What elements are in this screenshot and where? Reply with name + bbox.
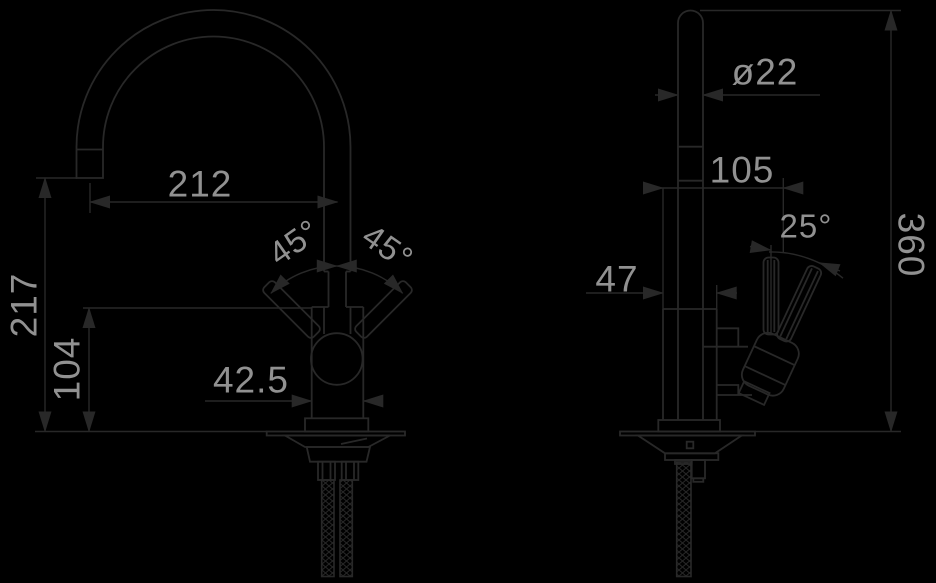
body-column <box>663 309 717 420</box>
dimension-d22: ø22 <box>655 52 820 96</box>
angle-label-right: 45° <box>356 217 421 278</box>
side-base <box>620 420 755 577</box>
dim-label-42-5: 42.5 <box>213 360 289 401</box>
hose-nut-right <box>342 462 359 480</box>
side-view: ø22 105 25° 47 360 <box>586 10 932 576</box>
dimension-42-5: 42.5 <box>205 360 383 402</box>
clamp-cone <box>285 436 390 448</box>
base-step <box>658 420 720 432</box>
ball-joint <box>311 333 363 385</box>
clamp-screw <box>341 439 367 445</box>
spout-arc <box>77 10 351 147</box>
faucet-technical-drawing: 212 217 104 42.5 45° 45° <box>0 0 936 583</box>
riser-tube-side <box>678 10 703 309</box>
lever-bracket <box>703 328 752 395</box>
front-view: 212 217 104 42.5 45° 45° <box>4 10 421 577</box>
base-step <box>305 418 368 431</box>
spout-arc-outer <box>77 10 351 147</box>
dim-label-105: 105 <box>710 150 775 191</box>
faucet-body <box>311 307 363 418</box>
spout-arc-inner <box>103 37 324 148</box>
dim-label-47: 47 <box>595 259 638 300</box>
angle-arc-25 <box>769 252 843 278</box>
angle-arrow-right <box>820 263 841 271</box>
hose-nut-left <box>318 462 335 480</box>
clamp-cone <box>638 436 742 454</box>
lever-tilted <box>775 264 822 343</box>
dim-label-212: 212 <box>168 164 233 205</box>
clamp-plate <box>307 447 370 462</box>
dimension-47: 47 <box>586 259 737 310</box>
supply-hose-right <box>340 480 352 577</box>
spout-outlet <box>77 147 104 178</box>
angle-label-left: 45° <box>262 212 327 273</box>
front-base <box>267 418 405 576</box>
tube-cap <box>678 10 703 23</box>
dimension-212: 212 <box>90 164 338 214</box>
dim-label-104: 104 <box>47 337 88 402</box>
riser-pipe <box>324 147 351 307</box>
handle-angle-right: 45° <box>337 217 420 294</box>
dim-label-d22: ø22 <box>732 52 799 93</box>
ball-housing <box>733 329 803 410</box>
angle-label-25: 25° <box>780 208 833 245</box>
drawing-canvas: 212 217 104 42.5 45° 45° <box>0 0 936 583</box>
clamp-plate <box>665 453 718 460</box>
angle-arrow-left <box>750 247 771 251</box>
dim-label-360: 360 <box>891 213 932 278</box>
hose-fitting <box>692 460 705 482</box>
clamp-notch <box>687 442 694 449</box>
supply-hose <box>677 462 691 577</box>
supply-hose-left <box>322 480 334 577</box>
dim-label-217: 217 <box>4 273 45 338</box>
